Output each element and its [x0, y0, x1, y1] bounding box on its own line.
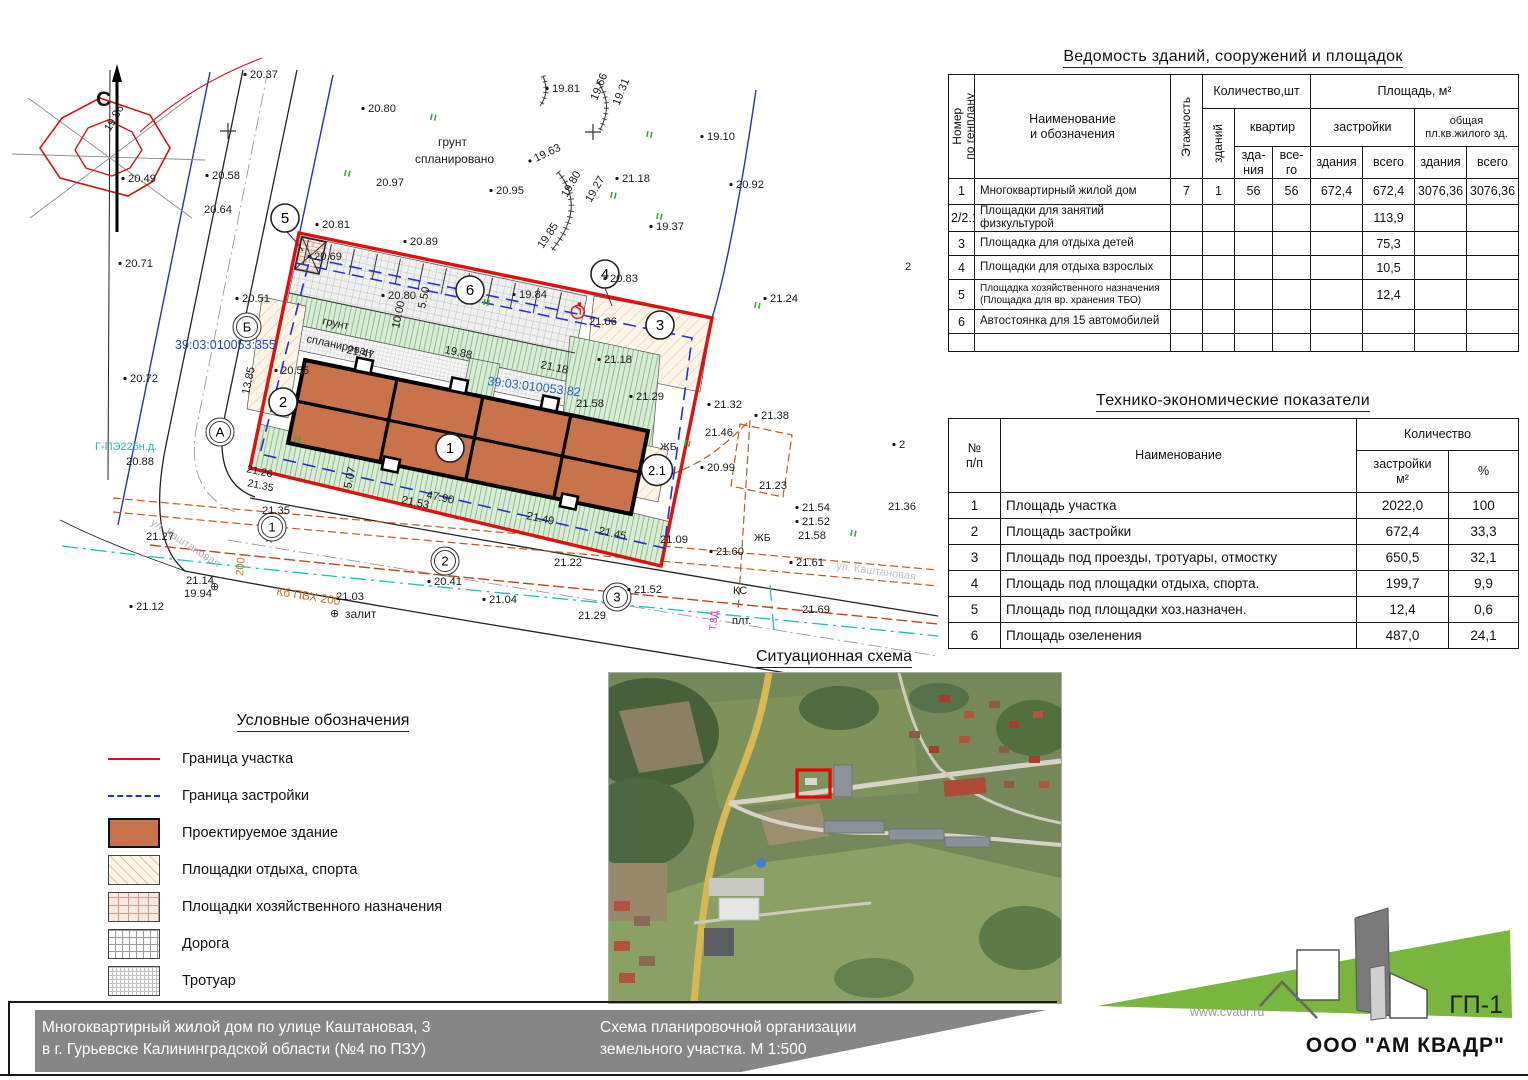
project-title-line2: в г. Гурьевске Калининградской области (…: [42, 1041, 426, 1058]
cell: [1311, 256, 1363, 280]
cell: 9,9: [1449, 571, 1519, 597]
cell: 3076,36: [1467, 179, 1519, 205]
cell: Площадь участка: [1001, 493, 1357, 519]
elevation-dot: [789, 561, 792, 564]
cell: [1203, 256, 1235, 280]
plan-label: 2: [905, 261, 911, 273]
legend-label: Площадки хозяйственного назначения: [182, 899, 442, 915]
subcol: застройки м²: [1357, 451, 1449, 493]
cell: [1171, 205, 1203, 232]
col-area: Площадь, м²: [1311, 75, 1519, 109]
plan-label: 20.81: [322, 219, 350, 231]
plan-label: 19.94: [184, 588, 212, 600]
plan-label: 21.09: [660, 534, 688, 546]
cell: Площадь озеленения: [1001, 623, 1357, 649]
cell: Площадь под площадки отдыха, спорта.: [1001, 571, 1357, 597]
plan-label: 21.29: [636, 391, 664, 403]
legend-item: Проектируемое здание: [108, 818, 538, 848]
cell: [1203, 205, 1235, 232]
col-buildings: зданий: [1203, 109, 1235, 179]
survey-crosses: [220, 123, 601, 140]
legend-item: Дорога: [108, 929, 538, 959]
plan-label: 20.89: [410, 236, 438, 248]
cell: 24,1: [1449, 623, 1519, 649]
table-title: Ведомость зданий, сооружений и площадок: [948, 48, 1518, 66]
drawing-sheet: БА1235643212.1 20.3720.8019.8119.6619.31…: [0, 0, 1528, 1080]
satellite-image: [608, 672, 1062, 1004]
cell: 12,4: [1357, 597, 1449, 623]
plan-label: 21.54: [802, 502, 830, 514]
cell: [1311, 205, 1363, 232]
col-qty: Количество,шт: [1203, 75, 1311, 109]
table-row: 3Площадь под проезды, тротуары, отмостку…: [949, 545, 1519, 571]
cell: 56: [1273, 179, 1311, 205]
cell: 6: [949, 310, 975, 334]
elevation-dot: [129, 605, 132, 608]
cell: 4: [949, 256, 975, 280]
plan-label: 20.69: [314, 251, 342, 263]
cell: [1273, 205, 1311, 232]
cell: [1311, 280, 1363, 310]
legend-item: Граница участка: [108, 744, 538, 774]
plan-label: С: [96, 88, 111, 111]
col-obshchaya: общая пл.кв.жилого зд.: [1415, 109, 1519, 147]
plan-label: 21.04: [489, 594, 517, 606]
cell: [1273, 280, 1311, 310]
legend-item: Тротуар: [108, 966, 538, 996]
tep-table: № п/п Наименование Количество застройки …: [948, 418, 1519, 649]
plan-label: 20.92: [736, 179, 764, 191]
cell: [1171, 280, 1203, 310]
legend-label: Проектируемое здание: [182, 825, 338, 841]
tep-block: Технико-экономические показатели № п/п Н…: [948, 392, 1518, 649]
cell: [1467, 232, 1519, 256]
plan-label: 20.80: [368, 103, 396, 115]
cell: [1311, 232, 1363, 256]
axis-label: Б: [243, 320, 252, 335]
col-name: Наименование: [1001, 419, 1357, 493]
subcol: %: [1449, 451, 1519, 493]
cell: [1171, 256, 1203, 280]
north-arrow: [112, 64, 122, 82]
axis-label: 3: [613, 590, 620, 605]
elevation-dot: [615, 177, 618, 180]
vedomost-body: 1Многоквартирный жилой дом715656672,4672…: [949, 179, 1519, 352]
buildings-register-table: Номер по генплану Наименование и обознач…: [948, 74, 1519, 352]
cell: 2/2.1: [949, 205, 975, 232]
cell: Площадки для занятий физкультурой: [975, 205, 1171, 232]
plan-label: 20.97: [376, 177, 404, 189]
plan-label: 20.37: [250, 69, 278, 81]
col-floors: Этажность: [1171, 75, 1203, 179]
site-number-label: 2: [279, 394, 287, 411]
plan-label: 20.99: [707, 462, 735, 474]
cell: 672,4: [1363, 179, 1415, 205]
buildings-register: Ведомость зданий, сооружений и площадок …: [948, 48, 1518, 352]
legend-items: Граница участкаГраница застройкиПроектир…: [108, 744, 538, 996]
plan-label: ЖБ: [660, 441, 677, 453]
cell: [1415, 334, 1467, 352]
plan-label: 19.66: [589, 72, 611, 102]
elevation-dot: [707, 403, 710, 406]
company-name: ООО "АМ КВАДР": [1306, 1034, 1505, 1057]
plan-label: 19.80: [559, 169, 583, 199]
elevation-dot: [205, 174, 208, 177]
cell: [1415, 310, 1467, 334]
elevation-dot: [235, 297, 238, 300]
cell: [1273, 232, 1311, 256]
elevation-dot: [795, 506, 798, 509]
site-number-label: 6: [466, 282, 474, 299]
elevation-dot: [274, 369, 277, 372]
cell: 32,1: [1449, 545, 1519, 571]
plan-label: 19.27: [583, 174, 607, 204]
elevation-dot: [597, 358, 600, 361]
grass-icon: [755, 302, 760, 309]
plan-label: 20.88: [126, 456, 154, 468]
legend-item: Площадки хозяйственного назначения: [108, 892, 538, 922]
elevation-dot: [315, 223, 318, 226]
col-name: Наименование и обозначения: [975, 75, 1171, 179]
col-apartments: квартир: [1235, 109, 1311, 147]
cell: 0,6: [1449, 597, 1519, 623]
cell: [1363, 334, 1415, 352]
plan-label: 39:03:010053:355: [175, 338, 276, 352]
cell: [1235, 205, 1273, 232]
subcol: здания: [1311, 147, 1363, 179]
plan-label: Т.8Д: [708, 610, 721, 631]
elevation-dot: [700, 466, 703, 469]
plan-label: 200: [234, 557, 248, 576]
cell: Площадка для отдыха детей: [975, 232, 1171, 256]
plan-label: 19.37: [656, 221, 684, 233]
axis-label: 1: [268, 520, 275, 535]
situational-scheme: Ситуационная схема: [608, 648, 1060, 1004]
cell: 650,5: [1357, 545, 1449, 571]
grass-icon: [657, 213, 662, 220]
cell: [1363, 310, 1415, 334]
elevation-dot: [545, 87, 548, 90]
plan-label: 21.18: [622, 173, 650, 185]
cell: [1415, 232, 1467, 256]
plan-label: 20.95: [496, 185, 524, 197]
plan-label: грунт: [438, 135, 468, 149]
cell: 3: [949, 545, 1001, 571]
cell: [1273, 310, 1311, 334]
legend-label: Тротуар: [182, 973, 236, 989]
cell: [1311, 310, 1363, 334]
cell: 7: [1171, 179, 1203, 205]
cell: [1203, 280, 1235, 310]
cell: 199,7: [1357, 571, 1449, 597]
cell: [1235, 310, 1273, 334]
table-row: 2/2.1Площадки для занятий физкультурой11…: [949, 205, 1519, 232]
grass-icon: [611, 192, 616, 199]
plan-label: 19.84: [519, 289, 547, 301]
plan-label: 20.49: [128, 173, 156, 185]
cell: [1235, 256, 1273, 280]
axis-label: 2: [441, 554, 448, 569]
company-logo: www.cvadr.ru ГП-1 ООО "АМ КВАДР": [1085, 878, 1528, 1078]
table-row: 1Площадь участка2022,0100: [949, 493, 1519, 519]
legend-item: Площадки отдыха, спорта: [108, 855, 538, 885]
subcol: здания: [1415, 147, 1467, 179]
plan-label: 20.71: [125, 258, 153, 270]
elevation-dot: [763, 297, 766, 300]
plan-label: 20.72: [130, 373, 158, 385]
plan-label: КС: [733, 585, 747, 597]
elevation-dot: [243, 73, 246, 76]
elevation-dot: [649, 225, 652, 228]
sheet-subject-line1: Схема планировочной организации: [600, 1019, 856, 1036]
title-bar: Многоквартирный жилой дом по улице Кашта…: [0, 1000, 1100, 1080]
plan-label: 20.51: [242, 293, 270, 305]
line-red-swatch: [108, 758, 160, 760]
elevation-dot: [512, 293, 515, 296]
table-row: 3Площадка для отдыха детей75,3: [949, 232, 1519, 256]
website-url: www.cvadr.ru: [1189, 1005, 1264, 1019]
cell: Площадь под проезды, тротуары, отмостку: [1001, 545, 1357, 571]
table-row: [949, 334, 1519, 352]
plan-label: 21.52: [802, 516, 830, 528]
plan-label: 21.60: [716, 546, 744, 558]
plan-label: 19.81: [552, 83, 580, 95]
cell: [1467, 205, 1519, 232]
elevation-dot: [709, 550, 712, 553]
plan-label: 21.35: [262, 505, 290, 517]
table-row: 2Площадь застройки672,433,3: [949, 519, 1519, 545]
elevation-dot: [381, 294, 384, 297]
site-number-label: 3: [656, 317, 664, 334]
cell: 3076,36: [1415, 179, 1467, 205]
cell: [1235, 232, 1273, 256]
project-title-line1: Многоквартирный жилой дом по улице Кашта…: [42, 1019, 430, 1036]
elevation-dot: [627, 588, 630, 591]
cell: 6: [949, 623, 1001, 649]
cell: 1: [949, 493, 1001, 519]
elevation-dot: [307, 255, 310, 258]
table-row: 6Площадь озеленения487,024,1: [949, 623, 1519, 649]
subcol: зда- ния: [1235, 147, 1273, 179]
plan-label: Г-ПЭ225н.д.: [95, 441, 157, 453]
hatch-road-swatch: [108, 929, 160, 959]
subcol: всего: [1467, 147, 1519, 179]
site-number-label: 2.1: [648, 463, 666, 478]
plan-label: 21.23: [759, 480, 787, 492]
plan-label: 21.27: [146, 531, 174, 543]
plan-label: 21.03: [336, 591, 364, 603]
elevation-dot: [482, 598, 485, 601]
legend-title: Условные обозначения: [108, 712, 538, 730]
site-number-label: 5: [281, 210, 289, 227]
cell: 2: [949, 519, 1001, 545]
cell: 1: [949, 179, 975, 205]
col-num: Номер по генплану: [949, 75, 975, 179]
plan-label: ⊕: [210, 581, 219, 593]
plan-label: 21.18: [604, 354, 632, 366]
subcol: все- го: [1273, 147, 1311, 179]
cell: [1235, 334, 1273, 352]
subcol: всего: [1363, 147, 1415, 179]
plan-label: плт.: [732, 615, 751, 627]
site-plan: БА1235643212.1 20.3720.8019.8119.6619.31…: [0, 0, 940, 705]
plan-label: 19.63: [532, 142, 562, 165]
elevation-dot: [121, 177, 124, 180]
plan-label: 20.83: [610, 273, 638, 285]
table-row: 5Площадь под площадки хоз.назначен.12,40…: [949, 597, 1519, 623]
plan-label: 21.06: [589, 316, 617, 328]
plan-label: 21.58: [798, 530, 826, 542]
legend: Условные обозначения Граница участкаГран…: [108, 712, 538, 1003]
plan-label: 21.36: [888, 501, 916, 513]
legend-label: Граница участка: [182, 751, 293, 767]
cell: 1: [1203, 179, 1235, 205]
elevation-dot: [603, 277, 606, 280]
cell: 10,5: [1363, 256, 1415, 280]
plan-label: 20.80: [388, 290, 416, 302]
cell: [1203, 334, 1235, 352]
elevation-dot: [754, 414, 757, 417]
cell: [1415, 280, 1467, 310]
cell: Площадь под площадки хоз.назначен.: [1001, 597, 1357, 623]
cell: 4: [949, 571, 1001, 597]
plan-label: 21.12: [136, 601, 164, 613]
cell: [1467, 334, 1519, 352]
cell: [1171, 334, 1203, 352]
logo-building-light: [1370, 965, 1386, 1020]
plan-label: 21.61: [796, 557, 824, 569]
site-number-label: 4: [601, 266, 609, 283]
plan-label: 21.29: [578, 610, 606, 622]
cell: [1171, 232, 1203, 256]
grass-icon: [851, 530, 856, 537]
cell: 672,4: [1311, 179, 1363, 205]
legend-label: Дорога: [182, 936, 229, 952]
cell: [1467, 256, 1519, 280]
hatch-household-swatch: [108, 892, 160, 922]
grass-icon: [431, 114, 436, 121]
table-row: 6Автостоянка для 15 автомобилей: [949, 310, 1519, 334]
cell: [1273, 334, 1311, 352]
cell: Площадки для отдыха взрослых: [975, 256, 1171, 280]
cell: [1415, 205, 1467, 232]
plan-label: 21.69: [802, 604, 830, 616]
plan-label: 21.46: [705, 427, 733, 439]
cell: 5: [949, 280, 975, 310]
elevation-dot: [892, 443, 895, 446]
elevation-dot: [123, 377, 126, 380]
cell: 487,0: [1357, 623, 1449, 649]
cell: [1311, 334, 1363, 352]
fill-building-swatch: [108, 818, 160, 848]
cell: [1203, 310, 1235, 334]
grass-icon: [345, 170, 350, 177]
plan-label: 2: [899, 439, 905, 451]
cell: 5: [949, 597, 1001, 623]
plan-label: Кб ПВХ 200: [276, 584, 342, 608]
table-row: 1Многоквартирный жилой дом715656672,4672…: [949, 179, 1519, 205]
axis-label: А: [216, 425, 225, 440]
line-blue-dash-swatch: [108, 795, 160, 797]
elevation-dot: [403, 240, 406, 243]
elevation-dot: [528, 159, 532, 163]
cell: 2022,0: [1357, 493, 1449, 519]
hatch-sidewalk-swatch: [108, 966, 160, 996]
cell: 3: [949, 232, 975, 256]
sheet-subject-line2: земельного участка. М 1:500: [600, 1041, 807, 1058]
cell: [1415, 256, 1467, 280]
legend-item: Граница застройки: [108, 781, 538, 811]
elevation-dot: [361, 107, 364, 110]
cell: 56: [1235, 179, 1273, 205]
plan-label: ул. Каштановая: [836, 560, 917, 583]
sheet-code: ГП-1: [1449, 991, 1503, 1019]
cell: [1467, 280, 1519, 310]
hatch-rest-swatch: [108, 855, 160, 885]
cell: [975, 334, 1171, 352]
cell: 672,4: [1357, 519, 1449, 545]
plan-label: 19.85: [536, 221, 562, 251]
plan-label: залит: [345, 607, 377, 621]
grass-icon: [647, 131, 652, 138]
cell: Автостоянка для 15 автомобилей: [975, 310, 1171, 334]
plan-label: 20.55: [281, 365, 309, 377]
plan-label: 21.22: [554, 557, 582, 569]
plan-label: ЖБ: [754, 532, 771, 544]
legend-label: Площадки отдыха, спорта: [182, 862, 358, 878]
elevation-dot: [427, 580, 430, 583]
cell: [1203, 232, 1235, 256]
cell: Площадь застройки: [1001, 519, 1357, 545]
cell: [1273, 256, 1311, 280]
elevation-dot: [795, 520, 798, 523]
site-number-label: 1: [446, 440, 454, 457]
plan-label: 21.58: [576, 398, 604, 410]
plan-label: 21.38: [761, 410, 789, 422]
table-row: 4Площадки для отдыха взрослых10,5: [949, 256, 1519, 280]
plan-label: ⊕: [330, 608, 339, 620]
legend-label: Граница застройки: [182, 788, 309, 804]
cell: Площадка хозяйственного назначения (Площ…: [975, 280, 1171, 310]
elevation-dot: [700, 135, 703, 138]
cell: Многоквартирный жилой дом: [975, 179, 1171, 205]
elevation-dot: [629, 395, 632, 398]
plan-label: 19.10: [707, 131, 735, 143]
cell: [949, 334, 975, 352]
plan-label: 19.31: [611, 77, 633, 107]
col-zastroyki: застройки: [1311, 109, 1415, 147]
cell: 75,3: [1363, 232, 1415, 256]
plan-label: 20.58: [212, 170, 240, 182]
col-qty: Количество: [1357, 419, 1519, 451]
table-row: 4Площадь под площадки отдыха, спорта.199…: [949, 571, 1519, 597]
plan-label: спланировано: [415, 152, 494, 166]
tep-body: 1Площадь участка2022,01002Площадь застро…: [949, 493, 1519, 649]
plan-label: 20.41: [434, 576, 462, 588]
cell: 33,3: [1449, 519, 1519, 545]
cell: [1467, 310, 1519, 334]
logo-building-white: [1297, 950, 1339, 1000]
plan-label: 21.32: [714, 399, 742, 411]
cell: 12,4: [1363, 280, 1415, 310]
cell: [1235, 280, 1273, 310]
elevation-dot: [729, 183, 732, 186]
cell: [1171, 310, 1203, 334]
plan-label: 20.64: [204, 204, 232, 216]
elevation-dot: [118, 262, 121, 265]
col-num: № п/п: [949, 419, 1001, 493]
plan-label: 21.52: [634, 584, 662, 596]
